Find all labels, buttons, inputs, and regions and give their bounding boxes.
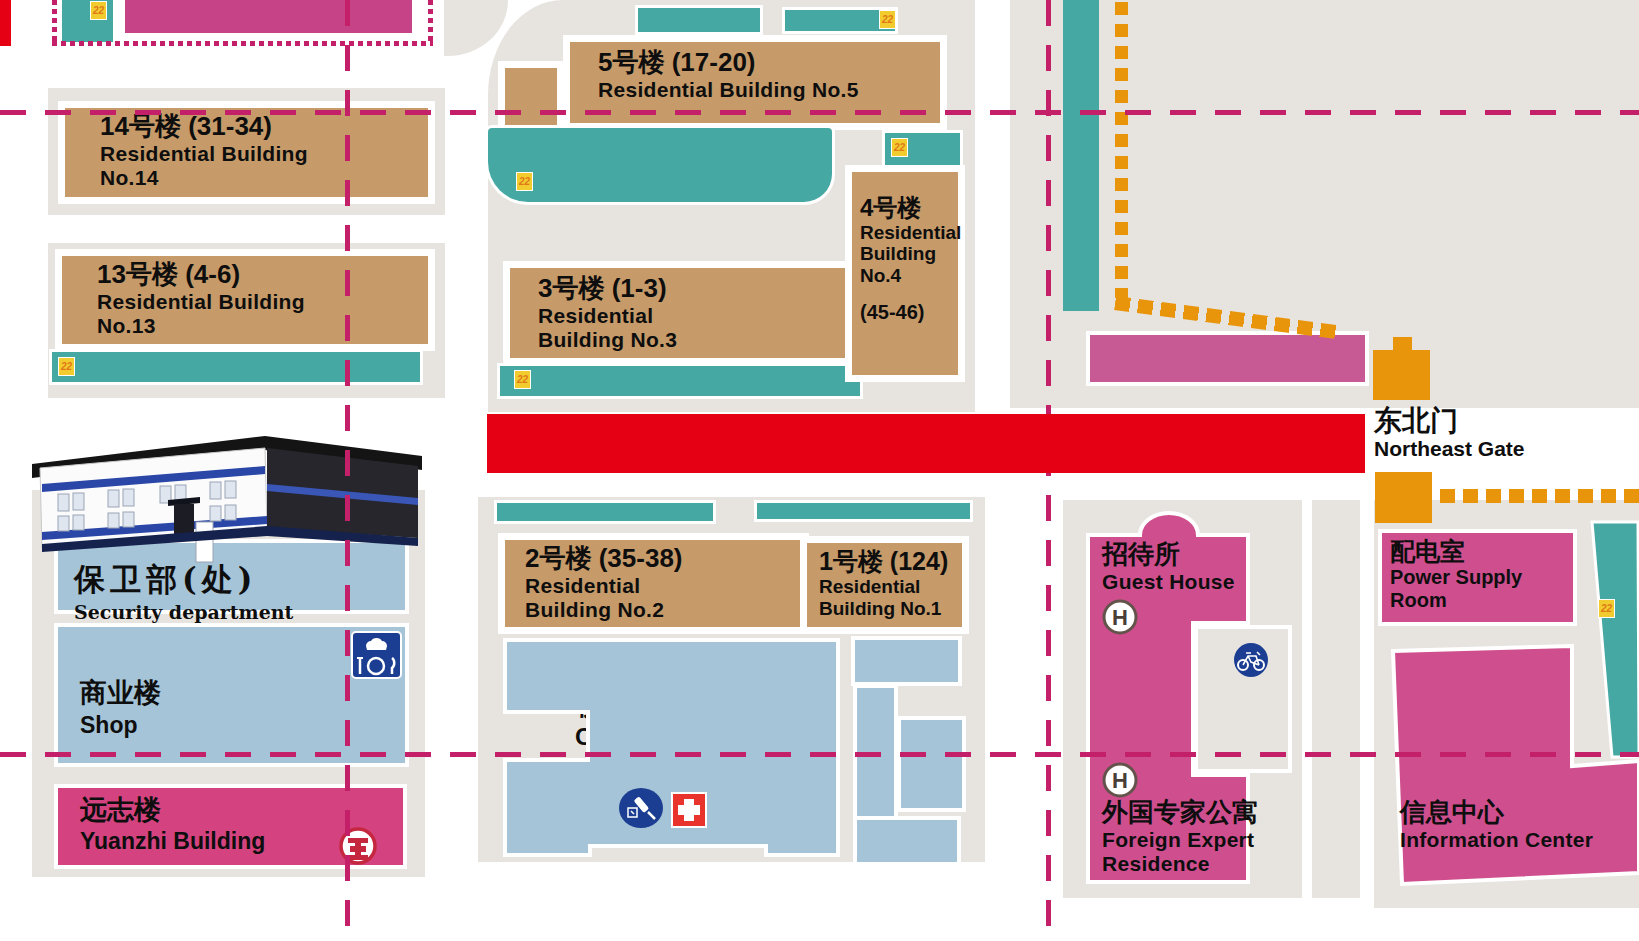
boundary-dotted-bottom [52, 41, 433, 46]
northeast-gate-label: 东北门 Northeast Gate [1374, 405, 1525, 461]
guesthouse-label: 招待所 Guest House [1102, 540, 1235, 594]
shed-tag-label: 22 [61, 361, 72, 372]
road-dashed-horizontal-north [0, 110, 1639, 115]
road-dashed-vertical-west [345, 0, 350, 941]
info-label-en: Information Center [1400, 828, 1593, 852]
foreign-expert-label-en1: Foreign Expert [1102, 828, 1258, 852]
shed-tag-label: 22 [519, 176, 530, 187]
footpath-dotted-east [1440, 489, 1639, 503]
shed-tag-label: 22 [1601, 603, 1612, 614]
bike-shed-east [1592, 522, 1639, 757]
security-building-illustration [32, 436, 422, 562]
hotel-mark: H [1112, 768, 1128, 793]
shed-tag-label: 22 [894, 142, 905, 153]
gate-block-south [1375, 472, 1432, 523]
hotel-icon: H [1104, 764, 1136, 796]
road-dashed-horizontal-south [0, 752, 1639, 757]
hotel-mark: H [1112, 605, 1128, 630]
shed-tag-icon: 22 [516, 172, 533, 191]
shed-tag-label: 22 [882, 14, 893, 25]
highlighted-road [487, 414, 1365, 473]
shed-tag-icon: 22 [514, 370, 531, 389]
shed-tag-icon: 22 [891, 138, 908, 157]
shed-tag-icon: 22 [1598, 599, 1615, 618]
first-aid-icon [672, 793, 706, 827]
medical-icon [619, 788, 663, 828]
foreign-expert-label-en2: Residence [1102, 852, 1258, 876]
shed-tag-icon: 22 [58, 357, 75, 376]
gate-post-stub [1393, 337, 1412, 351]
shed-tag-label: 22 [93, 5, 104, 16]
shed-tag-label: 22 [517, 374, 528, 385]
foreign-expert-label-zh: 外国专家公寓 [1102, 798, 1258, 828]
info-center-label: 信息中心 Information Center [1400, 798, 1593, 852]
boundary-dotted-left [52, 0, 57, 45]
gate-label-en: Northeast Gate [1374, 437, 1525, 461]
gate-block-north [1373, 350, 1430, 400]
bicycle-icon [1234, 643, 1268, 677]
shed-tag-icon: 22 [879, 10, 896, 29]
guesthouse-label-zh: 招待所 [1102, 540, 1235, 570]
shed-tag-icon: 22 [90, 1, 107, 20]
restaurant-icon [352, 632, 401, 678]
guesthouse-label-en: Guest House [1102, 570, 1235, 594]
hotel-icon: H [1104, 601, 1136, 633]
footpath-dotted-vertical [1115, 2, 1128, 298]
foreign-expert-label: 外国专家公寓 Foreign Expert Residence [1102, 798, 1258, 876]
info-label-zh: 信息中心 [1400, 798, 1593, 828]
campus-map: 22 14号楼 (31-34) Residential Building No.… [0, 0, 1639, 941]
gate-label-zh: 东北门 [1374, 405, 1525, 437]
boundary-dotted-right [428, 0, 433, 45]
